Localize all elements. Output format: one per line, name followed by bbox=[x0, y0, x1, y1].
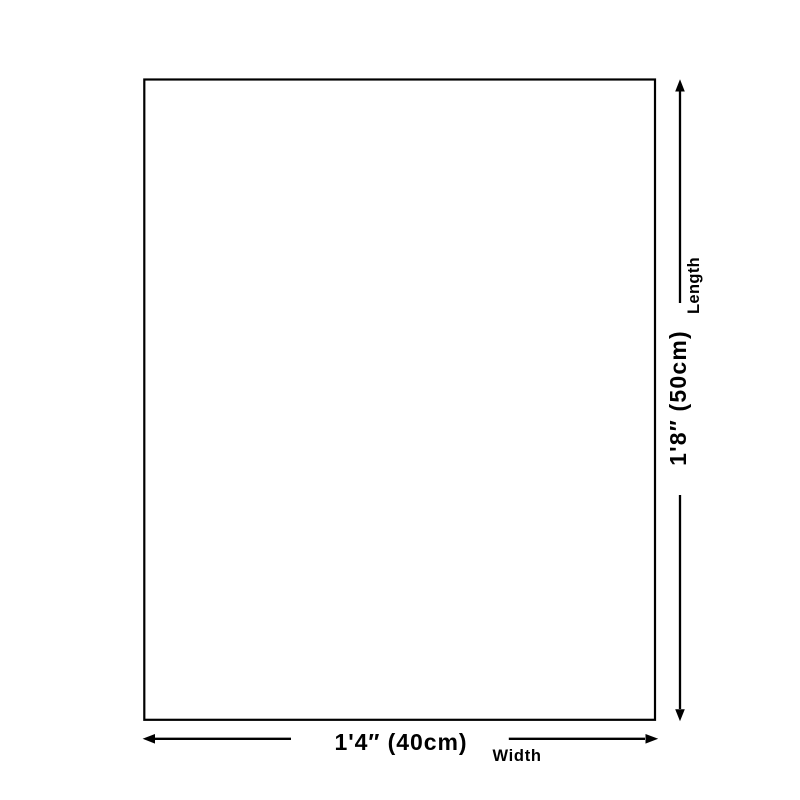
svg-text:1'4″ (40cm): 1'4″ (40cm) bbox=[334, 729, 467, 755]
svg-text:Width: Width bbox=[493, 747, 542, 765]
svg-text:1'8″ (50cm): 1'8″ (50cm) bbox=[665, 330, 691, 466]
svg-text:Length: Length bbox=[685, 257, 703, 314]
